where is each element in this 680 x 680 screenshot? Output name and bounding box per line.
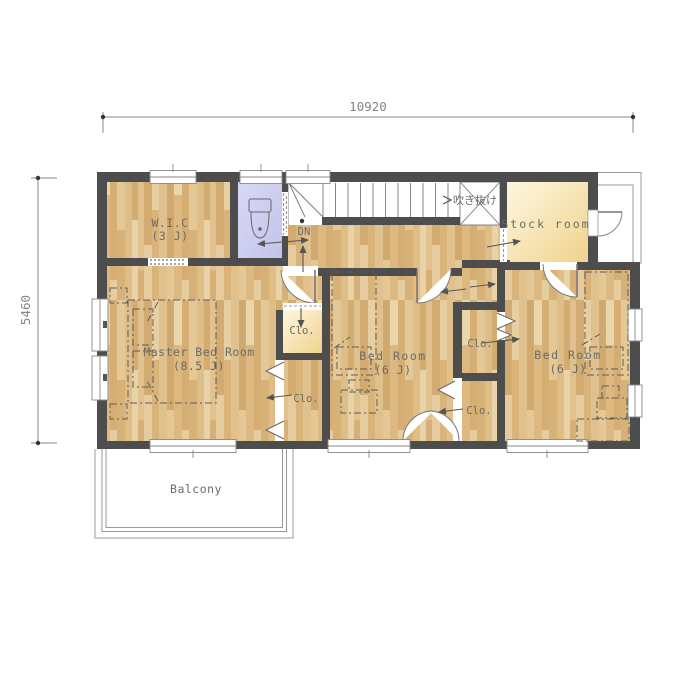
toilet-floor — [238, 182, 282, 258]
floor-plan-drawing: 10920 5460 W.I.C (3 J) DN 吹き抜け Stock roo… — [0, 0, 680, 680]
closet-label-master-lower: Clo. — [293, 393, 318, 405]
room-size-bed-right: (6 J) — [549, 362, 586, 376]
room-label-master: Master Bed Room — [143, 345, 254, 359]
room-label-wic: W.I.C — [151, 216, 188, 230]
master-top-closet-opening — [283, 303, 322, 310]
room-size-bed-center: (6 J) — [374, 363, 411, 377]
room-size-master: (8.5 J) — [173, 359, 225, 373]
balcony-label: Balcony — [170, 482, 222, 496]
floor-plan-page: 10920 5460 W.I.C (3 J) DN 吹き抜け Stock roo… — [0, 0, 680, 680]
closet-label-right-top: Clo. — [467, 338, 492, 350]
room-label-bed-center: Bed Room — [359, 349, 426, 363]
roof-terrace-area — [596, 173, 641, 264]
toilet-sliding-door — [282, 192, 288, 236]
wic-sliding-opening — [148, 258, 188, 266]
room-size-wic: (3 J) — [151, 229, 188, 243]
closet-label-master-top: Clo. — [289, 325, 314, 337]
room-label-stock: Stock room — [501, 217, 590, 231]
room-label-bed-right: Bed Room — [534, 348, 601, 362]
closet-label-right-lower: Clo. — [466, 405, 491, 417]
stair-down-marker — [300, 219, 304, 223]
void-label: 吹き抜け — [453, 193, 497, 207]
dimension-left-label: 5460 — [18, 295, 33, 325]
stair-dn-label: DN — [298, 226, 311, 238]
dimension-top-label: 10920 — [349, 99, 387, 114]
